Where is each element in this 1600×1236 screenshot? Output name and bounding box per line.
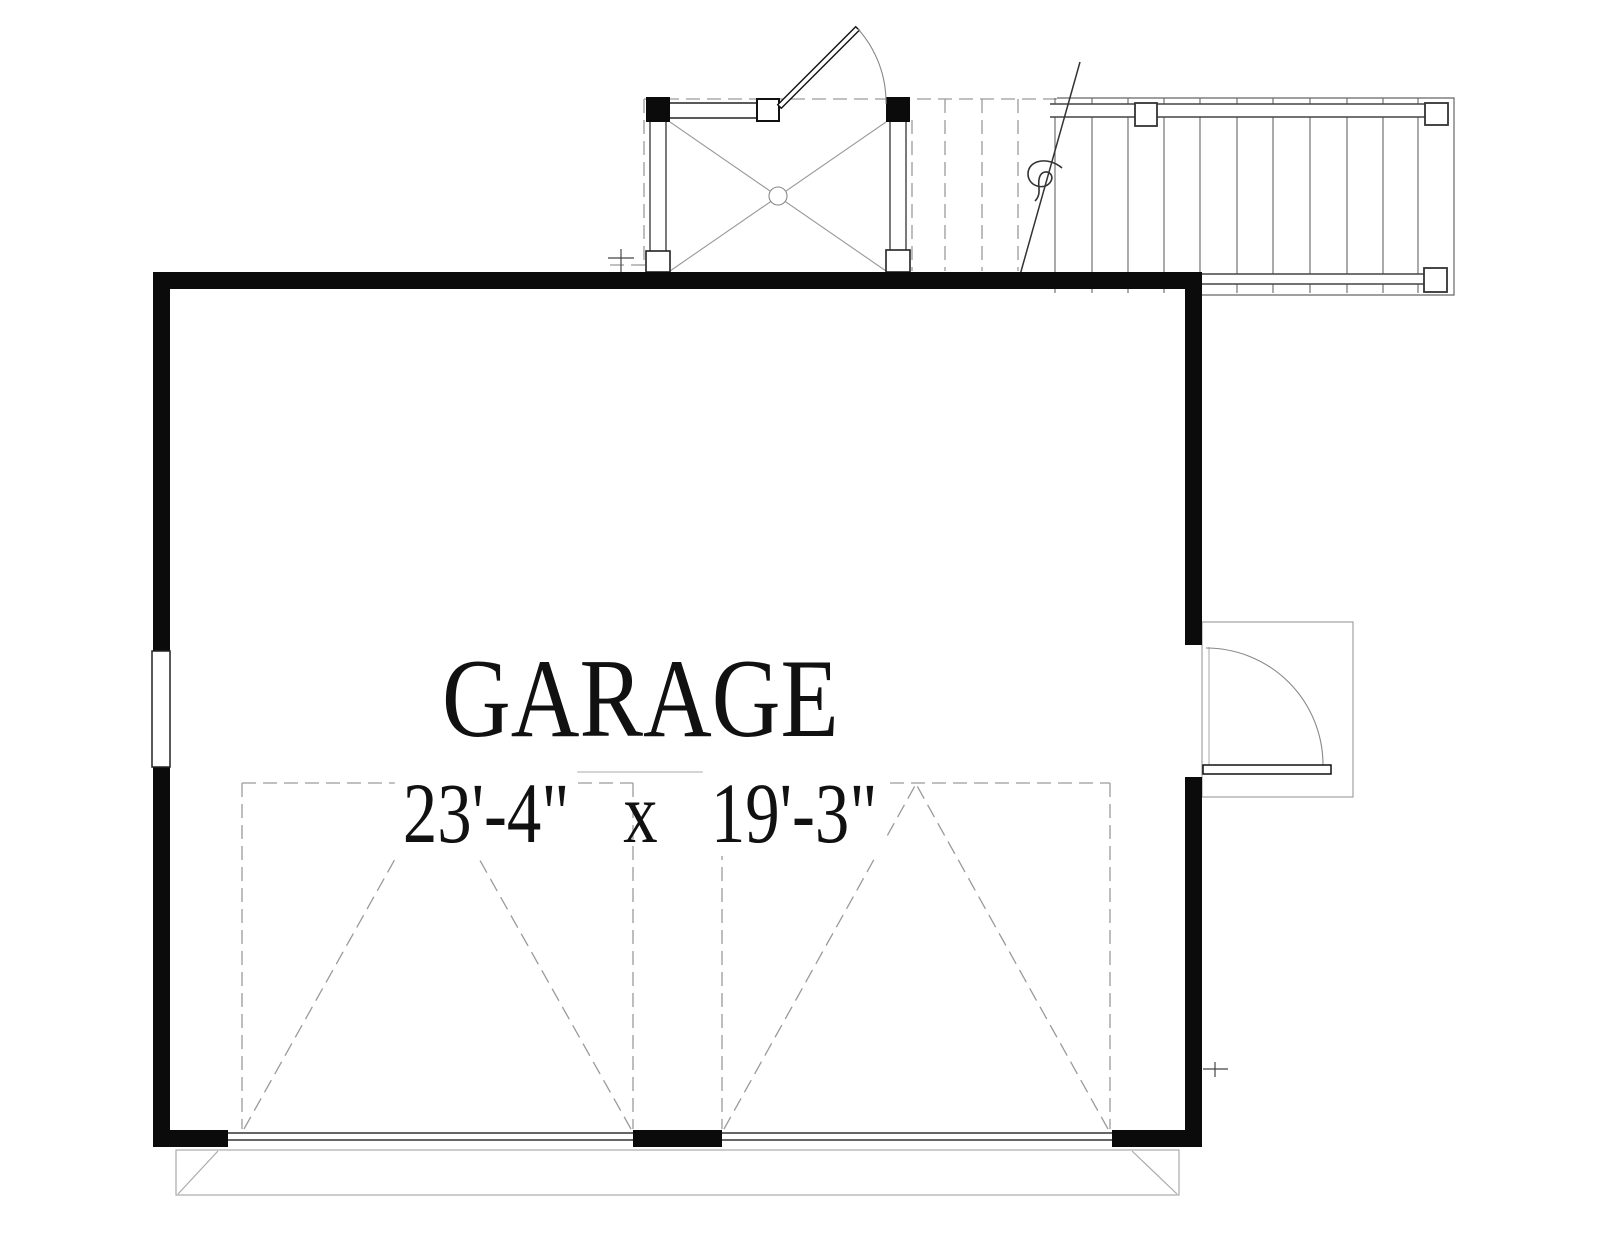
break-line: [1020, 62, 1080, 275]
room-dimensions: 23'-4" x 19'-3": [140, 770, 1140, 856]
side-door: [1202, 622, 1353, 797]
roof-outline-dashed: [610, 99, 1057, 271]
wall-bottom-left: [153, 1130, 228, 1147]
wall-left-upper: [153, 272, 170, 651]
stair-newel-posts: [1135, 103, 1448, 292]
porch-column-base-left: [646, 251, 670, 272]
wall-right-lower: [1185, 777, 1202, 1147]
entry-door-jamb: [757, 99, 779, 121]
wall-right-upper: [1185, 272, 1202, 645]
wall-top: [153, 272, 1202, 289]
dimension-height: 19'-3": [702, 770, 885, 856]
floor-plan-drawing: [0, 0, 1600, 1236]
entry-door-leaf: [778, 27, 860, 109]
side-door-leaf: [1203, 765, 1331, 774]
wall-bottom-center-pier: [633, 1130, 722, 1147]
stair-outline: [1057, 98, 1454, 295]
porch: [610, 27, 1057, 272]
dimension-separator: x: [623, 770, 657, 856]
driveway-apron: [176, 1150, 1179, 1195]
room-label: GARAGE: [140, 643, 1140, 755]
stair-top-rail: [1050, 104, 1425, 117]
porch-beam: [670, 103, 757, 118]
porch-column-base-right: [886, 250, 910, 272]
stair-treads: [1055, 98, 1418, 293]
break-line-squiggle: [1028, 161, 1062, 201]
porch-x-brace: [670, 122, 886, 271]
floor-plan-canvas: GARAGE 23'-4" x 19'-3": [0, 0, 1600, 1236]
stair-bottom-rail: [1198, 274, 1425, 284]
side-door-swing-arc: [1206, 648, 1323, 765]
porch-column-right: [886, 97, 910, 122]
dimension-width: 23'-4": [395, 770, 578, 856]
entry-door-swing-arc: [858, 29, 886, 104]
room-label-text: GARAGE: [442, 643, 839, 755]
stair: [1050, 98, 1454, 295]
wall-bottom-right: [1112, 1130, 1202, 1147]
porch-column-left: [646, 97, 670, 122]
